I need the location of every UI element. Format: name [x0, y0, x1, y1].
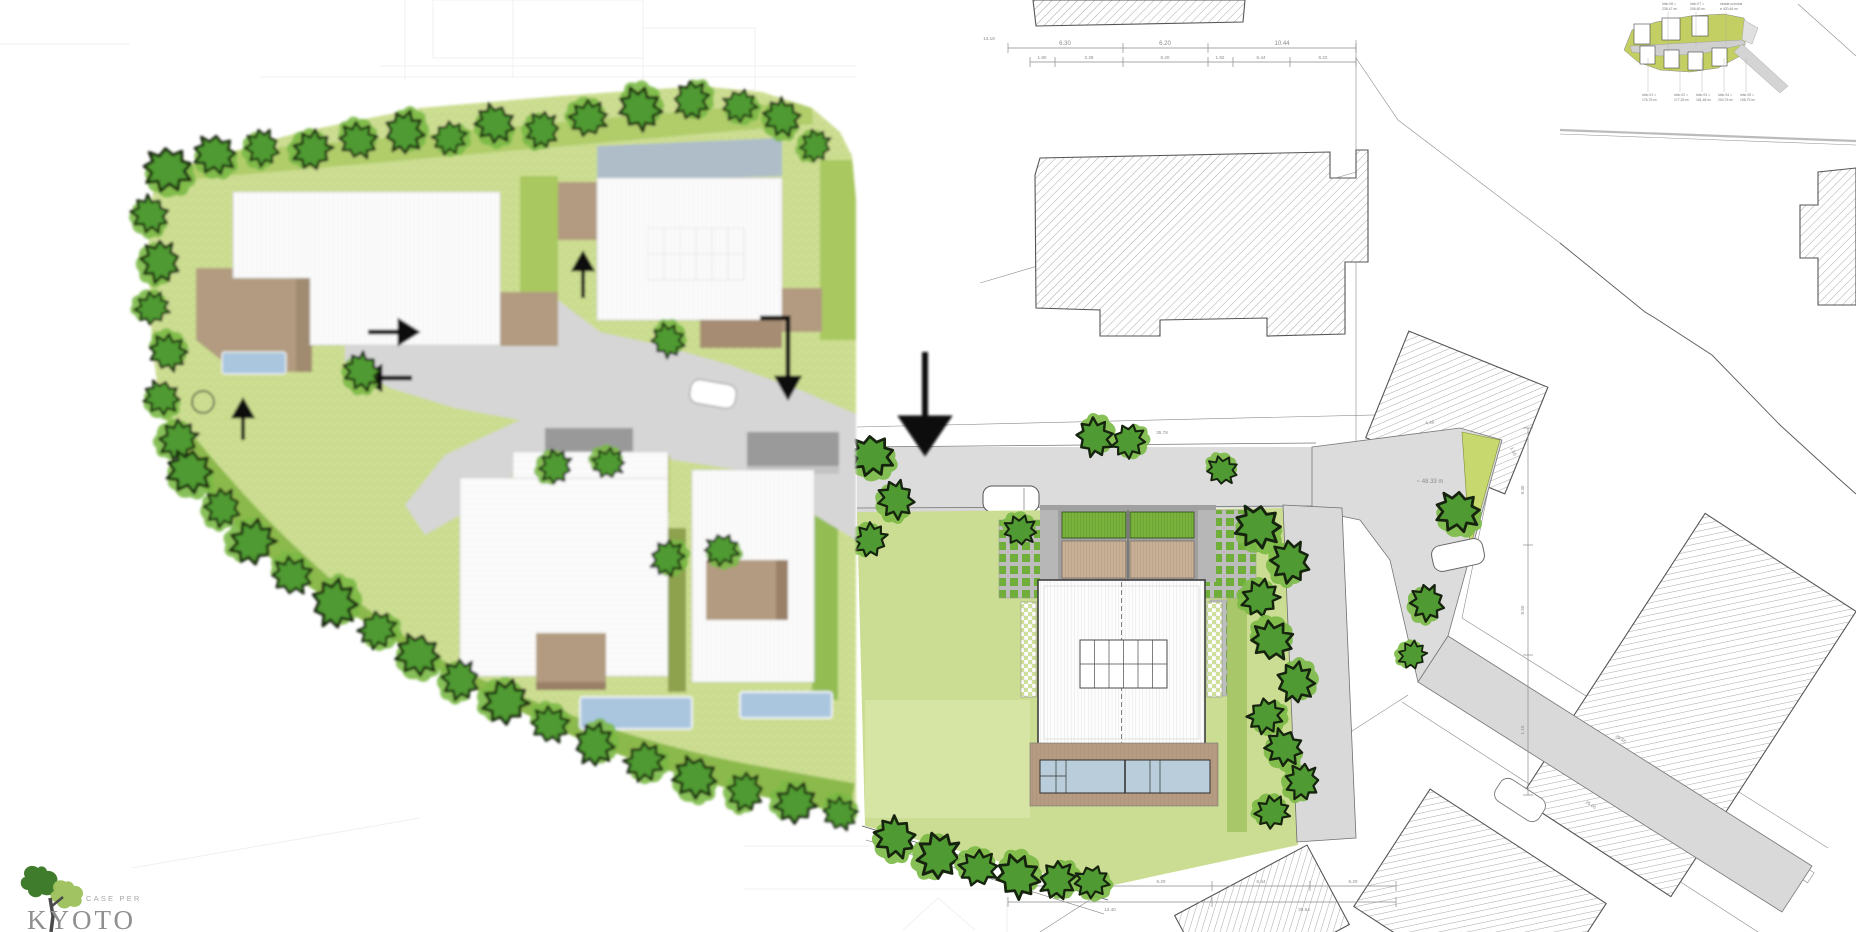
dim-label: 13.18	[983, 36, 995, 41]
dim-label: 6.20	[1349, 879, 1358, 884]
ghost-building-outline	[433, 0, 643, 58]
paver-strip-right	[1207, 602, 1222, 697]
key-plan-fork	[1742, 20, 1758, 44]
dim-label: 6.20	[1161, 55, 1170, 60]
lot-label: lotto 05 =	[1740, 93, 1754, 97]
carport-green-roof	[1062, 512, 1126, 538]
south-deck	[1030, 743, 1218, 806]
dim-label: 8.50	[1520, 605, 1525, 614]
carport-garage	[1040, 505, 1216, 582]
tree-icon	[850, 436, 898, 481]
lot-label: lotto 07 =	[1690, 2, 1704, 6]
dim-label: 2.28	[1085, 55, 1094, 60]
dim-label: 6.44	[1257, 55, 1266, 60]
plaza-area-label: ~ 48.33 m	[1417, 479, 1444, 485]
lot-label: 176,78 m²	[1642, 98, 1658, 102]
dim-label: 1.92	[1216, 55, 1225, 60]
building-4	[668, 470, 832, 718]
dim-label: 6.20	[1159, 41, 1171, 47]
dim-label: 6.20	[1157, 879, 1166, 884]
neighbour-building	[1800, 168, 1856, 305]
dim-label: 10.44	[1274, 41, 1290, 47]
site-plan-canvas: 6.30 6.20 10.44 1.90 2.28 6.20 1.92 6.44…	[0, 0, 1856, 932]
dim-label: 12.40	[1104, 907, 1116, 912]
lot-label: 206,60 m²	[1690, 7, 1706, 11]
lot-label: 204,76 m²	[1718, 98, 1734, 102]
garage-b4	[747, 432, 839, 470]
rendered-site	[121, 72, 948, 834]
neighbour-building	[1033, 0, 1245, 26]
logo-tagline: CASE PER	[86, 894, 142, 903]
garden-patch-light	[865, 700, 1030, 818]
lot-label: lotto 02 =	[1674, 93, 1688, 97]
carport-green-roof	[1130, 512, 1194, 538]
lot-label: lotto 01 =	[1642, 93, 1656, 97]
pool	[222, 352, 286, 374]
neighbour-building	[1035, 150, 1368, 336]
tree-icon	[144, 149, 196, 198]
skylight-grid	[1080, 640, 1167, 688]
pool	[740, 692, 832, 718]
dim-label: 6.22	[1319, 55, 1328, 60]
window-band	[1040, 760, 1210, 793]
key-plan: lotto 06 = 238,47 m² lotto 07 = 206,60 m…	[1624, 2, 1788, 102]
lot-label: 181,48 m²	[1696, 98, 1712, 102]
dim-label: 6.30	[1059, 41, 1071, 47]
lot-label: 198,75 m²	[1740, 98, 1756, 102]
lot-label: 238,47 m²	[1662, 7, 1678, 11]
access-road	[857, 447, 1312, 508]
dim-label: 1.90	[1038, 55, 1047, 60]
dim-label: 30.64	[1298, 907, 1310, 912]
lot-label: lotto 03 =	[1696, 93, 1710, 97]
dim-label: 6.44	[1257, 879, 1266, 884]
lot-label: 177,53 m²	[1674, 98, 1690, 102]
logo: CASE PER KYOTO	[21, 866, 142, 932]
lot-label: strada comune	[1720, 2, 1743, 6]
paver-strip-left	[1021, 602, 1036, 697]
car	[983, 486, 1039, 512]
lot-label: lotto 04 =	[1718, 93, 1732, 97]
main-roof	[1038, 580, 1205, 745]
ghost-gable	[903, 898, 975, 930]
dim-label: 1.15	[1520, 725, 1525, 734]
dim-label: 9.30	[1520, 485, 1525, 494]
lot-label: lotto 06 =	[1662, 2, 1676, 6]
logo-brand: KYOTO	[27, 905, 136, 932]
dimension-chain-top: 6.30 6.20 10.44 1.90 2.28 6.20 1.92 6.44…	[983, 36, 1356, 67]
key-plan-road-tail	[1734, 44, 1788, 93]
lot-label: e 420,46 m²	[1720, 7, 1739, 11]
dim-label: 35.78	[1156, 430, 1168, 435]
